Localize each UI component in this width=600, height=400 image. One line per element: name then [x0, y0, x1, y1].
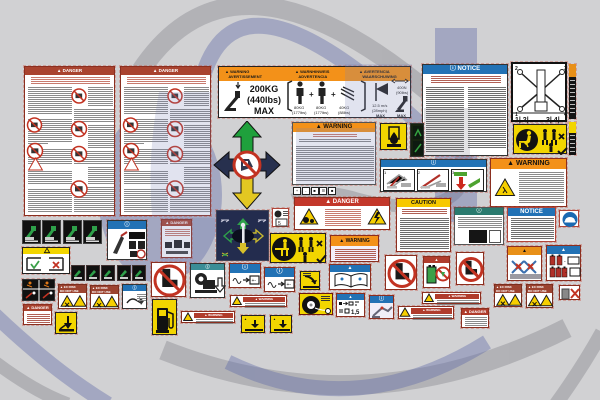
svg-text:(177lbs): (177lbs)	[314, 110, 329, 115]
svg-text:▲: ▲	[273, 317, 276, 321]
svg-text:+: +	[331, 90, 336, 99]
svg-text:+-: +-	[287, 282, 292, 288]
svg-text:MAX: MAX	[376, 113, 385, 118]
svg-text:(177lbs): (177lbs)	[292, 110, 307, 115]
svg-text:(90lbs): (90lbs)	[396, 90, 409, 95]
svg-text:5: 5	[278, 221, 281, 227]
svg-text:(88lbs): (88lbs)	[338, 110, 351, 115]
svg-text:+: +	[309, 90, 314, 99]
svg-text:+-: +-	[252, 278, 257, 284]
svg-text:1,5: 1,5	[351, 310, 360, 316]
svg-text:1| 2|: 1| 2|	[515, 117, 529, 124]
svg-text:2: 2	[515, 66, 518, 72]
svg-text:▲: ▲	[244, 317, 247, 321]
svg-text:MAX: MAX	[397, 113, 406, 118]
svg-text:3| 4|: 3| 4|	[546, 117, 560, 124]
svg-text:-: -	[564, 259, 566, 265]
svg-text:3: 3	[564, 66, 567, 72]
